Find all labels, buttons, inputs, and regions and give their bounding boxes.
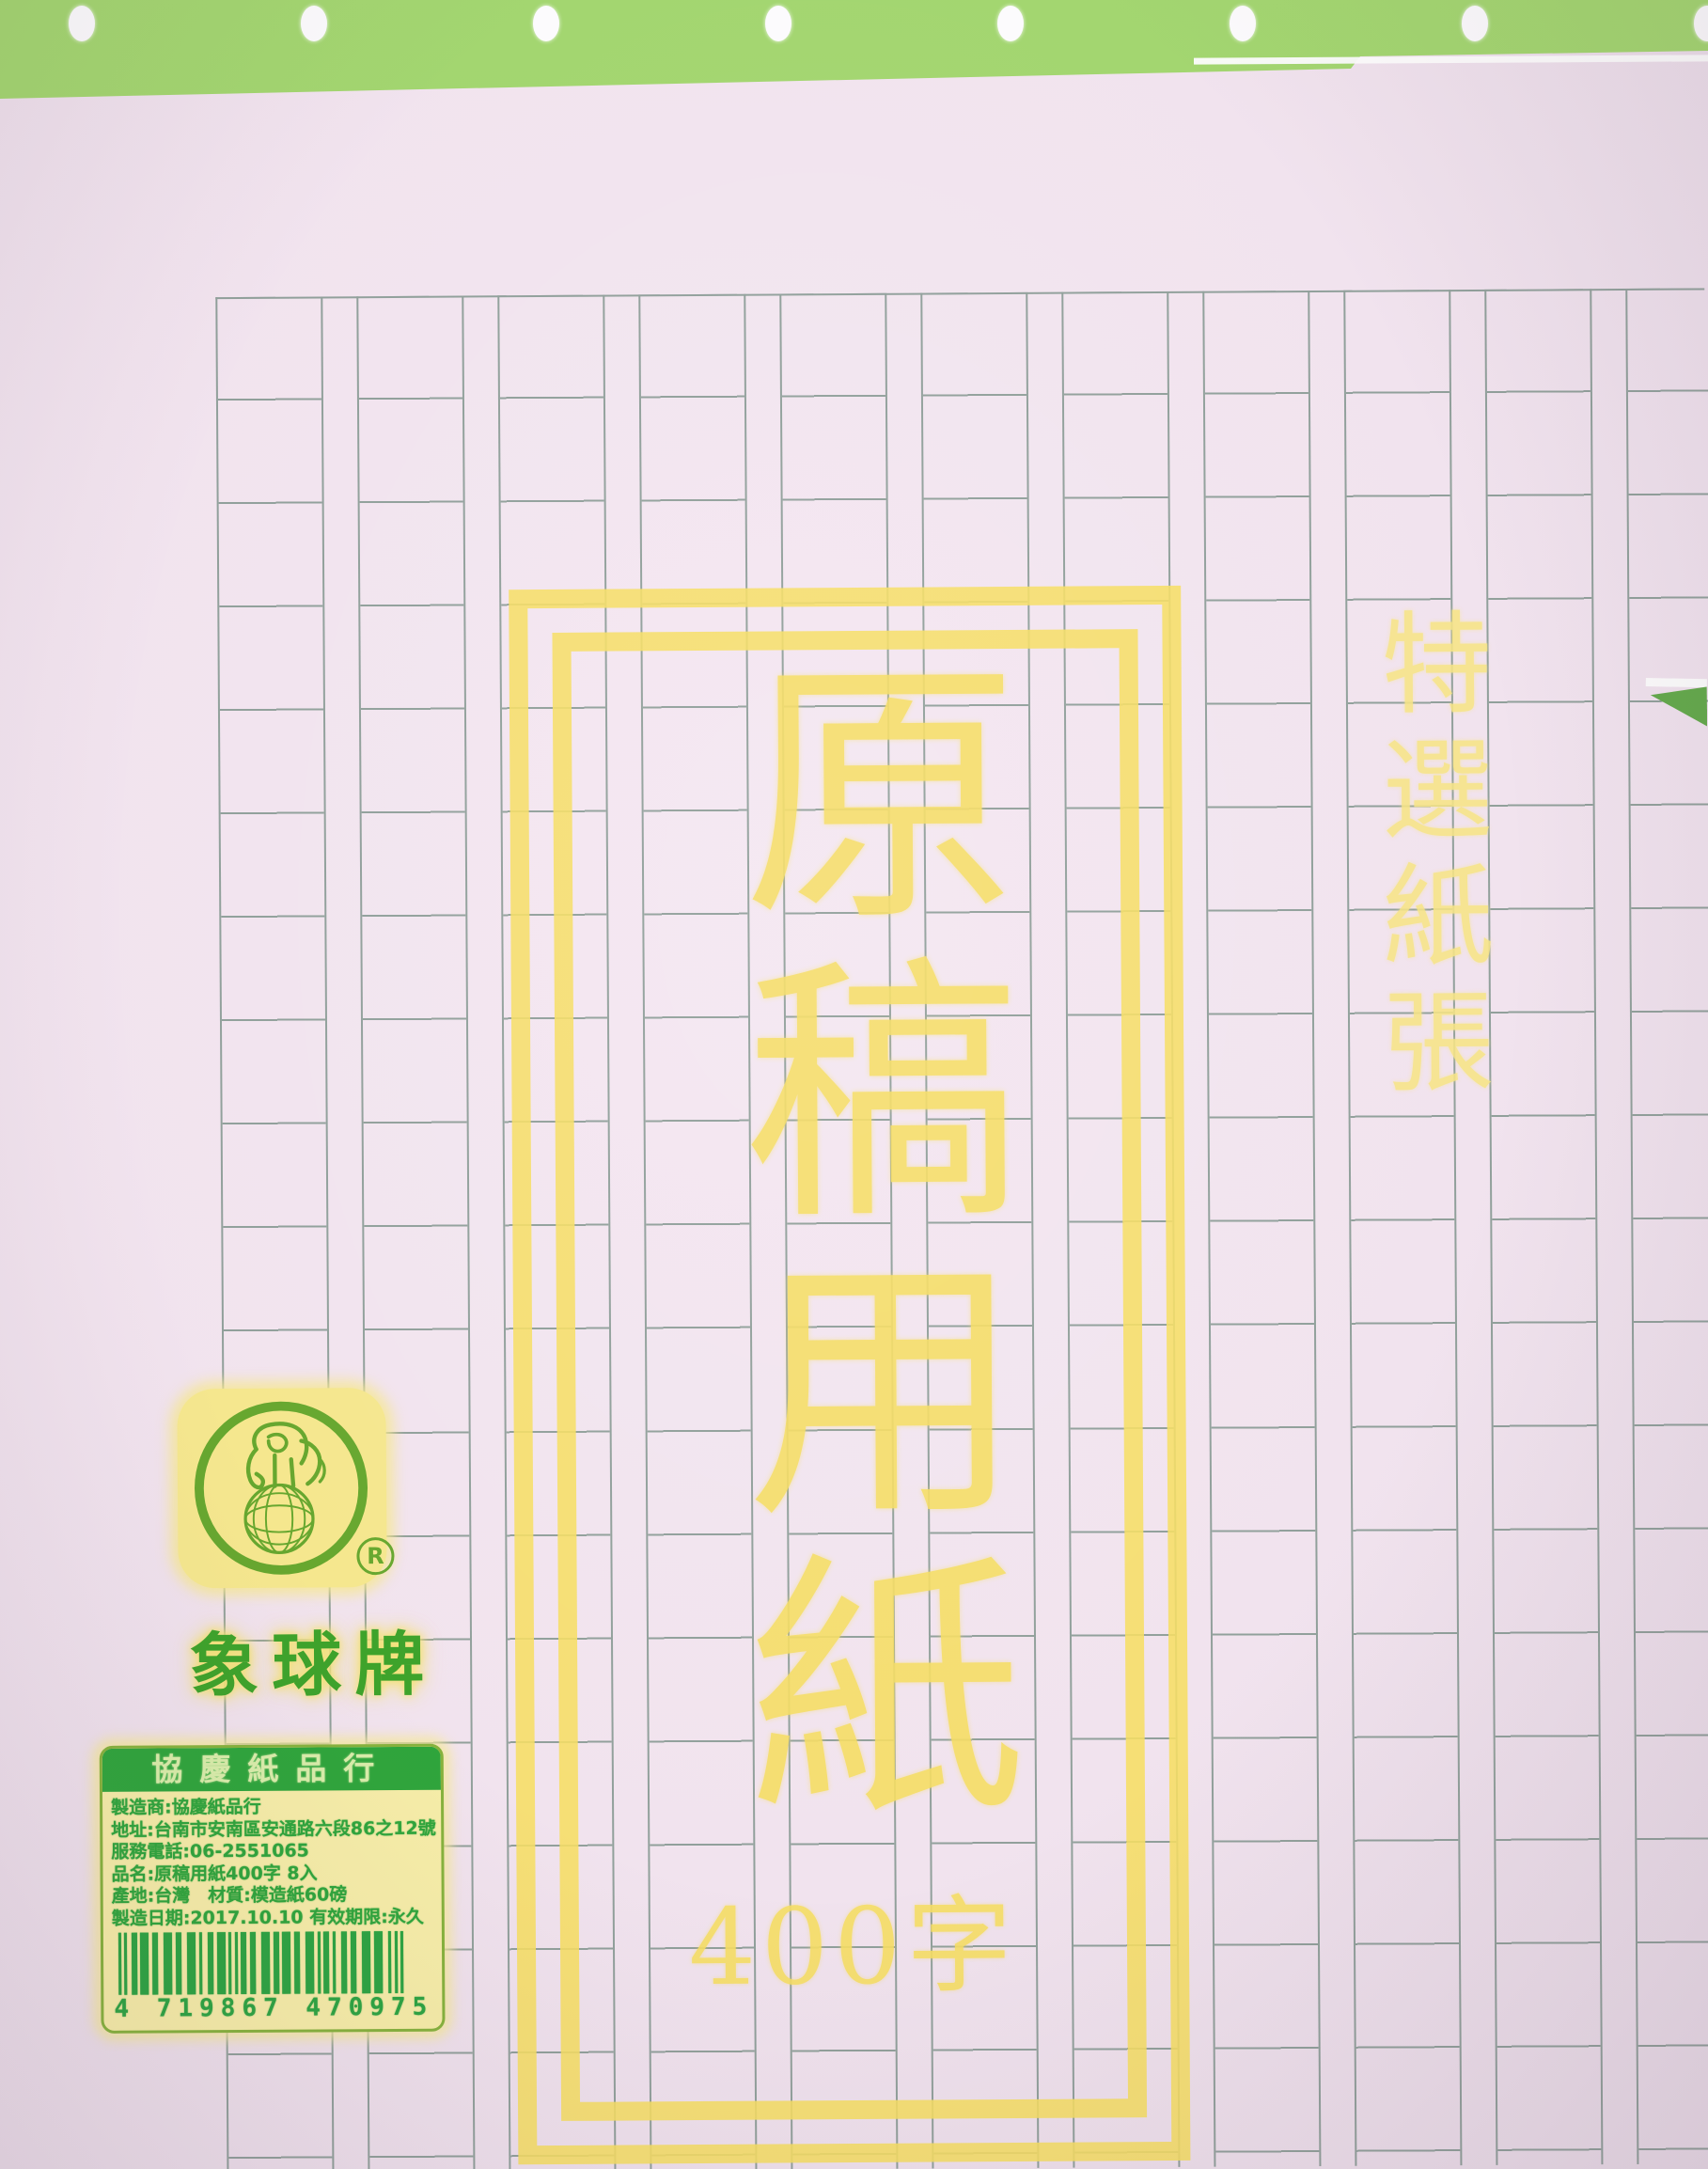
product-photo: 原稿用紙 400字 特選紙張 R 象球牌 協慶紙品行	[0, 0, 1708, 2169]
barcode-bar	[261, 1932, 270, 1994]
barcode-bar	[208, 1932, 213, 1994]
barcode-bar	[250, 1932, 256, 1994]
barcode-bar	[241, 1932, 246, 1994]
barcode-bar	[124, 1933, 127, 1995]
label-line-address: 地址:台南市安南區安通路六段86之12號	[111, 1817, 432, 1842]
grid-column	[1625, 288, 1708, 2164]
barcode-bar	[217, 1932, 226, 1994]
barcode-bar	[228, 1932, 231, 1994]
label-body: 製造商:協慶紙品行 地址:台南市安南區安通路六段86之12號 服務電話:06-2…	[102, 1790, 442, 1931]
paper-printed-content: 原稿用紙 400字 特選紙張 R 象球牌 協慶紙品行	[0, 0, 1708, 2169]
barcode-bar	[400, 1931, 403, 1993]
barcode-bar	[388, 1931, 391, 1993]
character-count-text: 400字	[516, 1860, 1189, 2016]
barcode-bar	[395, 1931, 398, 1993]
side-slogan-vertical: 特選紙張	[1350, 605, 1484, 1110]
barcode-bar	[362, 1931, 370, 1993]
barcode-number: 4 719867 470975	[109, 1993, 438, 2023]
manufacturer-info-label: 協慶紙品行 製造商:協慶紙品行 地址:台南市安南區安通路六段86之12號 服務電…	[100, 1744, 446, 2034]
grid-column	[1202, 291, 1321, 2167]
grid-column	[1343, 290, 1462, 2166]
brand-logo-patch	[177, 1388, 386, 1588]
barcode-bar	[199, 1932, 202, 1994]
barcode-bar	[333, 1931, 336, 1993]
barcode-bar	[374, 1931, 383, 1993]
barcode-bar	[306, 1932, 314, 1994]
label-line-dates: 製造日期:2017.10.10 有效期限:永久	[112, 1907, 433, 1931]
barcode-bar	[318, 1931, 321, 1993]
barcode-bar	[187, 1932, 196, 1994]
registered-trademark-icon: R	[356, 1537, 394, 1575]
barcode-bars	[118, 1931, 429, 1995]
label-line-product-name: 品名:原稿用紙400字 8入	[111, 1863, 432, 1887]
barcode-bar	[294, 1932, 300, 1994]
barcode-bar	[152, 1933, 158, 1995]
barcode-bar	[282, 1932, 290, 1994]
brand-name-text: 象球牌	[189, 1609, 438, 1711]
sheet-edge-highlight	[1646, 678, 1707, 687]
writing-grid	[0, 0, 1702, 6]
grid-column	[1484, 289, 1603, 2165]
barcode-bar	[235, 1932, 238, 1994]
label-line-origin-material: 產地:台灣 材質:模造紙60磅	[112, 1884, 433, 1909]
manufacturer-name-header: 協慶紙品行	[102, 1747, 441, 1792]
barcode-bar	[323, 1931, 329, 1993]
barcode-bar	[118, 1933, 121, 1995]
barcode-bar	[351, 1931, 356, 1993]
barcode-bar	[164, 1932, 172, 1994]
elephant-globe-logo-icon	[188, 1395, 373, 1580]
barcode-bar	[274, 1932, 279, 1994]
barcode-bar	[140, 1933, 149, 1995]
product-title-vertical: 原稿用紙	[702, 648, 1001, 1842]
barcode-bar	[176, 1932, 181, 1994]
label-line-manufacturer: 製造商:協慶紙品行	[111, 1796, 432, 1820]
barcode-bar	[132, 1933, 137, 1995]
label-line-phone: 服務電話:06-2551065	[111, 1840, 432, 1864]
barcode-bar	[341, 1931, 347, 1993]
